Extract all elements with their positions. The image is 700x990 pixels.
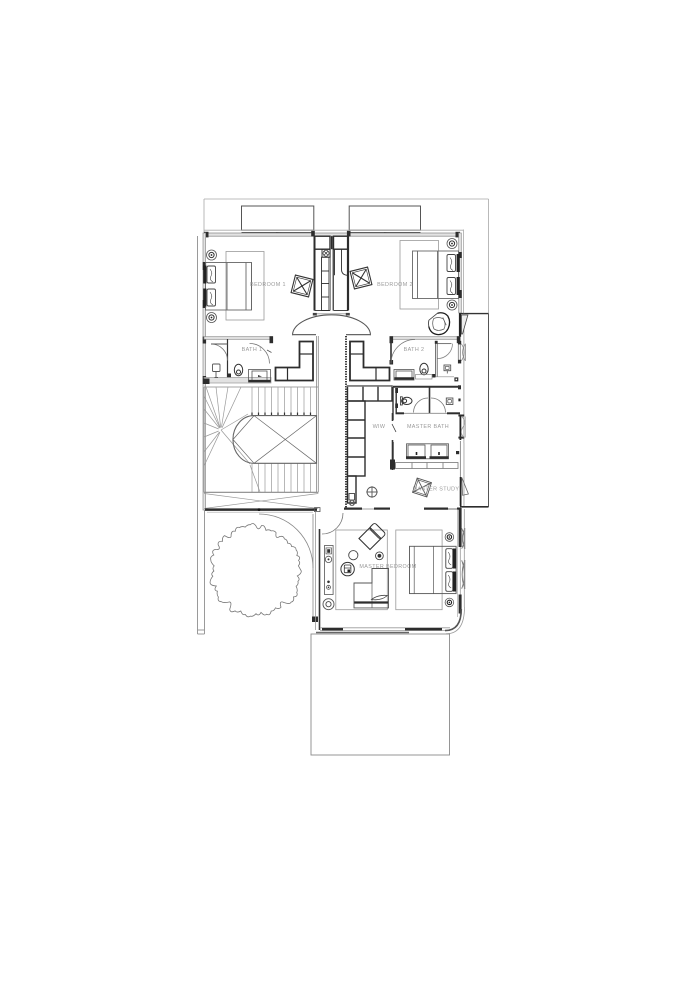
svg-text:MASTER BEDROOM: MASTER BEDROOM <box>359 564 416 570</box>
svg-text:WIW: WIW <box>373 424 386 430</box>
svg-text:BATH 1: BATH 1 <box>242 347 263 353</box>
svg-text:MASTER BATH: MASTER BATH <box>407 424 449 430</box>
svg-text:BEDROOM 1: BEDROOM 1 <box>250 282 286 288</box>
svg-text:BATH 2: BATH 2 <box>404 347 425 353</box>
svg-text:MASTER STUDY: MASTER STUDY <box>413 487 460 493</box>
svg-text:BEDROOM 2: BEDROOM 2 <box>377 282 413 288</box>
